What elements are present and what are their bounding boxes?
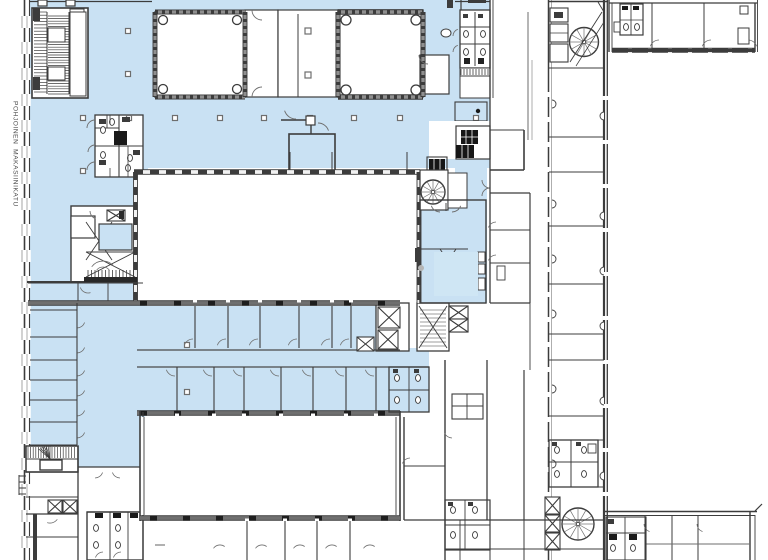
- svg-text:POHJOINEN MAKASIINIKATU: POHJOINEN MAKASIINIKATU: [12, 101, 19, 207]
